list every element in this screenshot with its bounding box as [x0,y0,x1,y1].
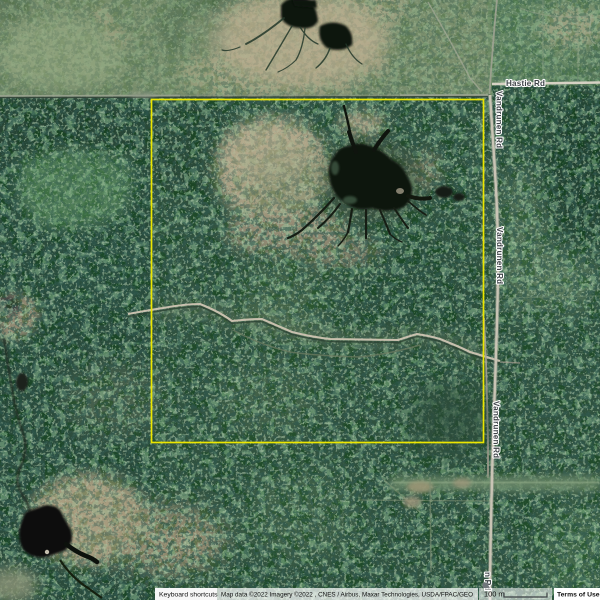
svg-text:Map data ©2022 Imagery ©2022 ,: Map data ©2022 Imagery ©2022 , CNES / Ai… [221,591,473,599]
svg-text:Terms of Use: Terms of Use [557,592,600,599]
svg-text:Keyboard shortcuts: Keyboard shortcuts [159,592,218,599]
svg-text:Vandrunen Rd: Vandrunen Rd [495,91,504,148]
svg-text:Vandrunen Rd: Vandrunen Rd [495,227,504,284]
svg-text:100 m: 100 m [484,590,505,599]
svg-text:Vandrunen Rd: Vandrunen Rd [492,401,501,458]
svg-text:Hastie Rd: Hastie Rd [506,79,545,88]
